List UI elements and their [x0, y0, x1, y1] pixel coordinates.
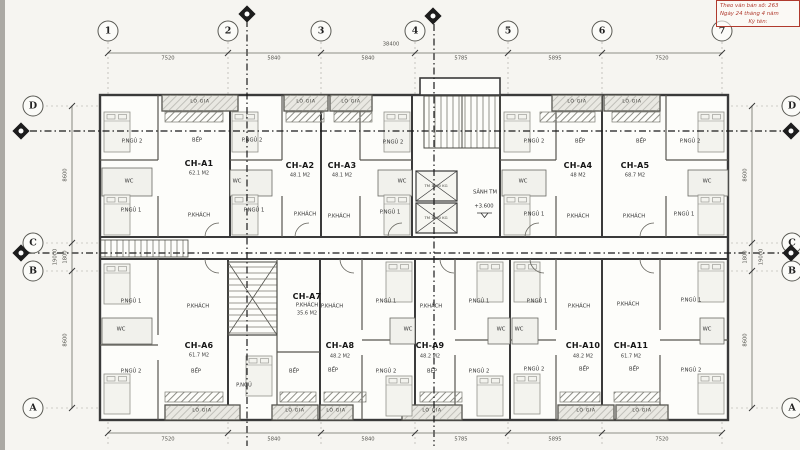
stamp-line: Ký tên: — [720, 19, 796, 27]
grid-row-bubble-d-right: D — [782, 96, 800, 117]
stamp-line: Theo văn bản số: 263 — [720, 3, 796, 11]
room-label-living: P.KHÁCH — [567, 214, 589, 219]
room-label-living: P.KHÁCH — [420, 304, 442, 309]
room-label-wc: WC — [497, 327, 506, 332]
unit-area-ch-a9: 48.2 M2 — [420, 355, 440, 360]
room-label-kitchen: BẾP — [192, 138, 202, 143]
unit-title-ch-a10: CH-A10 — [566, 342, 600, 350]
room-label-loggia: LÔ GIA — [567, 101, 586, 106]
room-label-loggia: LÔ GIA — [326, 410, 345, 415]
unit-area-ch-a8: 48.2 M2 — [330, 355, 350, 360]
room-label-kitchen: BẾP — [636, 139, 646, 144]
room-label-kitchen: BẾP — [579, 367, 589, 372]
dim-label: 7520 — [655, 56, 668, 61]
room-label-bedroom1: P.NGỦ 1 — [681, 298, 702, 303]
scan-edge-artifact — [0, 0, 5, 450]
unit-title-ch-a5: CH-A5 — [621, 162, 650, 170]
dim-total-label: 38400 — [383, 42, 400, 47]
unit-area-ch-a11: 61.7 M2 — [621, 355, 641, 360]
unit-title-ch-a3: CH-A3 — [328, 162, 357, 170]
unit-area-ch-a3: 48.1 M2 — [332, 174, 352, 179]
room-label-bedroom1: P.NGỦ 1 — [524, 212, 545, 217]
unit-title-ch-a2: CH-A2 — [286, 162, 315, 170]
room-label-living: P.KHÁCH — [188, 213, 210, 218]
unit-area-ch-a2: 48.1 M2 — [290, 174, 310, 179]
room-label-living: P.KHÁCH — [617, 302, 639, 307]
room-label-bedroom2: P.NGỦ 2 — [121, 369, 142, 374]
room-label-bedroom2: P.NGỦ 2 — [376, 369, 397, 374]
room-label-kitchen: BẾP — [289, 369, 299, 374]
dim-total-label: 19000 — [759, 249, 764, 266]
dim-label: 8600 — [743, 168, 748, 181]
unit-title-ch-a9: CH-A9 — [416, 342, 445, 350]
room-label-bedroom2: P.NGỦ 2 — [122, 139, 143, 144]
room-label-bedroom1: P.NGỦ 1 — [527, 299, 548, 304]
dim-label: 7520 — [655, 437, 668, 442]
room-label-bedroom1: P.NGỦ 1 — [380, 210, 401, 215]
unit-title-ch-a8: CH-A8 — [326, 342, 355, 350]
room-label-loggia: LÔ GIA — [632, 410, 651, 415]
grid-column-bubble-2: 2 — [218, 21, 239, 42]
approval-stamp: Theo văn bản số: 263 Ngày 24 tháng 4 năm… — [716, 0, 800, 27]
room-label-wc: WC — [404, 327, 413, 332]
room-label-wc: WC — [519, 179, 528, 184]
dim-label: 5840 — [267, 437, 280, 442]
room-label-bedroom2: P.NGỦ 2 — [681, 368, 702, 373]
room-label-bedroom1: P.NGỦ 1 — [121, 208, 142, 213]
room-label-kitchen: BẾP — [575, 139, 585, 144]
room-label-loggia: LÔ GIA — [285, 410, 304, 415]
unit-area-ch-a1: 62.1 M2 — [189, 172, 209, 177]
room-label-bedroom2: P.NGỦ 2 — [469, 369, 490, 374]
room-label-bedroom2: P.NGỦ 2 — [383, 140, 404, 145]
grid-column-bubble-6: 6 — [592, 21, 613, 42]
room-label-bedroom1: P.NGỦ 1 — [376, 299, 397, 304]
unit-area-ch-a4: 48 M2 — [570, 174, 585, 179]
room-label-wc: WC — [703, 327, 712, 332]
room-label-bedroom2: P.NGỦ 2 — [524, 139, 545, 144]
elevator-label: TM 1000 KG — [424, 184, 447, 188]
room-label-bedroom: P.NGỦ — [236, 383, 252, 388]
room-label-living: P.KHÁCH — [296, 303, 318, 308]
dim-label: 5840 — [361, 56, 374, 61]
floor-plan-linework — [0, 0, 800, 450]
room-label-wc: WC — [233, 179, 242, 184]
room-label-wc: WC — [117, 327, 126, 332]
room-label-bedroom2: P.NGỦ 2 — [242, 138, 263, 143]
room-label-kitchen: BẾP — [629, 367, 639, 372]
room-label-living: P.KHÁCH — [321, 304, 343, 309]
dim-total-label: 19000 — [53, 249, 58, 266]
grid-row-bubble-b-left: B — [23, 261, 44, 282]
room-label-wc: WC — [515, 327, 524, 332]
dim-label: 7520 — [161, 56, 174, 61]
room-label-loggia: LÔ GIA — [422, 410, 441, 415]
room-label-loggia: LÔ GIA — [190, 101, 209, 106]
grid-column-bubble-1: 1 — [98, 21, 119, 42]
dim-label: 7520 — [161, 437, 174, 442]
room-label-living: P.KHÁCH — [187, 304, 209, 309]
dim-label: 5840 — [361, 437, 374, 442]
unit-title-ch-a7: CH-A7 — [293, 293, 322, 301]
grid-row-bubble-a-right: A — [782, 398, 800, 419]
stamp-line: Ngày 24 tháng 4 năm — [720, 11, 796, 19]
unit-title-ch-a4: CH-A4 — [564, 162, 593, 170]
room-label-wc: WC — [398, 179, 407, 184]
room-label-bedroom2: P.NGỦ 2 — [680, 139, 701, 144]
dim-label: 1800 — [743, 250, 748, 263]
room-label-living: P.KHÁCH — [568, 304, 590, 309]
room-label-loggia: LÔ GIA — [192, 410, 211, 415]
room-label-loggia: LÔ GIA — [622, 101, 641, 106]
unit-area-ch-a10: 48.2 M2 — [573, 355, 593, 360]
level-label: +3.600 — [474, 204, 493, 209]
room-label-bedroom1: P.NGỦ 1 — [121, 299, 142, 304]
dim-label: 5895 — [548, 56, 561, 61]
dim-label: 5840 — [267, 56, 280, 61]
unit-area-ch-a6: 61.7 M2 — [189, 354, 209, 359]
grid-column-bubble-4: 4 — [405, 21, 426, 42]
room-label-kitchen: BẾP — [191, 369, 201, 374]
room-label-wc: WC — [703, 179, 712, 184]
room-label-bedroom1: P.NGỦ 1 — [244, 208, 265, 213]
grid-column-bubble-5: 5 — [498, 21, 519, 42]
grid-row-bubble-d-left: D — [23, 96, 44, 117]
room-label-loggia: LÔ GIA — [341, 101, 360, 106]
unit-title-ch-a1: CH-A1 — [185, 160, 214, 168]
room-label-bedroom1: P.NGỦ 1 — [674, 212, 695, 217]
dim-label: 1800 — [63, 250, 68, 263]
grid-row-bubble-a-left: A — [23, 398, 44, 419]
room-label-living: P.KHÁCH — [294, 212, 316, 217]
dim-label: 8600 — [63, 333, 68, 346]
grid-row-bubble-b-right: B — [782, 261, 800, 282]
room-label-bedroom2: P.NGỦ 2 — [524, 367, 545, 372]
lobby-label: SẢNH TM — [473, 190, 497, 195]
room-label-living: P.KHÁCH — [328, 214, 350, 219]
dim-label: 8600 — [743, 333, 748, 346]
unit-title-ch-a6: CH-A6 — [185, 342, 214, 350]
room-label-bedroom1: P.NGỦ 1 — [469, 299, 490, 304]
room-label-wc: WC — [125, 179, 134, 184]
dim-label: 5895 — [548, 437, 561, 442]
dim-label: 5785 — [454, 56, 467, 61]
dim-label: 5785 — [454, 437, 467, 442]
room-label-kitchen: BẾP — [328, 368, 338, 373]
room-label-loggia: LÔ GIA — [576, 410, 595, 415]
unit-title-ch-a11: CH-A11 — [614, 342, 648, 350]
dim-label: 8600 — [63, 168, 68, 181]
room-label-loggia: LÔ GIA — [296, 101, 315, 106]
grid-column-bubble-3: 3 — [311, 21, 332, 42]
room-label-kitchen: BẾP — [427, 369, 437, 374]
room-label-living: P.KHÁCH — [623, 214, 645, 219]
elevator-label: TM 1000 KG — [424, 216, 447, 220]
unit-area-ch-a7: 35.6 M2 — [297, 312, 317, 317]
unit-area-ch-a5: 68.7 M2 — [625, 174, 645, 179]
floor-plan-drawing: 1 2 3 4 5 6 7 D C B A D C B A 7520 5840 … — [0, 0, 800, 450]
